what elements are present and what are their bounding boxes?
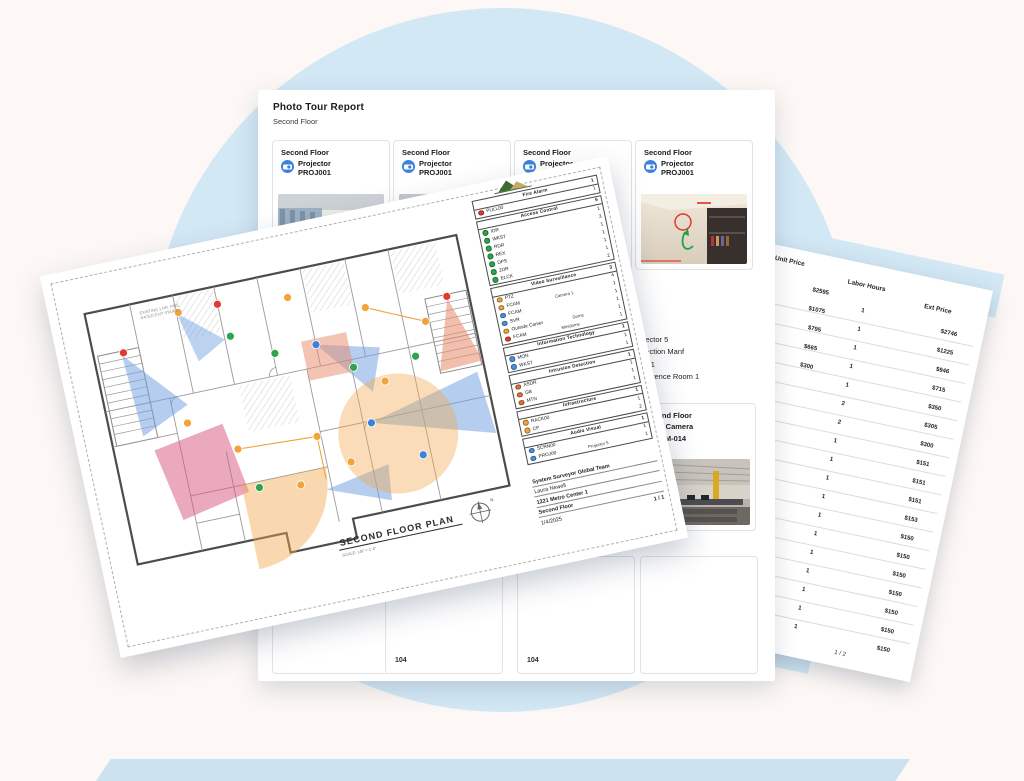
legend-item-label: WKST bbox=[519, 360, 534, 368]
device-symbol-icon bbox=[496, 297, 503, 304]
legend-item-label: GB bbox=[525, 390, 533, 396]
projector-icon bbox=[402, 160, 415, 173]
device-symbol-icon bbox=[489, 261, 496, 268]
labor-hours-value: 1 bbox=[820, 435, 851, 447]
legend-item-count: 1 bbox=[628, 376, 637, 383]
card-floor-label: Second Floor bbox=[281, 148, 381, 157]
legend-section-count: 3 bbox=[609, 265, 613, 270]
card-floor-label: Second Floor bbox=[402, 148, 502, 157]
site-photo-projector-mount bbox=[641, 194, 747, 264]
device-symbol-icon bbox=[482, 230, 489, 237]
pricing-header-unit-price: Unit Price bbox=[774, 255, 805, 268]
device-symbol-icon bbox=[492, 277, 499, 284]
labor-hours-value: 1 bbox=[796, 547, 827, 559]
labor-hours-value: 1 bbox=[844, 324, 875, 336]
bottom-blue-bar bbox=[96, 759, 910, 781]
labor-hours-value: 1 bbox=[804, 510, 835, 522]
card-device-id: PROJ001 bbox=[661, 168, 694, 177]
legend-section-count: 1 bbox=[628, 352, 632, 357]
device-symbol-icon bbox=[503, 328, 510, 335]
legend-item-label: FCAM bbox=[513, 333, 527, 341]
legend-item-count: 2 bbox=[602, 253, 611, 260]
legend-item-count: 1 bbox=[587, 186, 596, 193]
card-device-type: Projector bbox=[419, 159, 452, 168]
legend-section-count: 1 bbox=[641, 415, 645, 420]
legend-item-count: 1 bbox=[614, 312, 623, 319]
labor-hours-value: 1 bbox=[840, 342, 871, 354]
device-symbol-icon bbox=[516, 392, 523, 399]
labor-hours-value: 1 bbox=[784, 603, 815, 615]
card-device-type: Projector bbox=[298, 159, 331, 168]
device-symbol-icon bbox=[524, 427, 531, 434]
device-symbol-icon bbox=[530, 455, 537, 462]
legend-item-label: MTN bbox=[526, 397, 537, 404]
pricing-row-divider bbox=[748, 376, 958, 421]
labor-hours-value: 2 bbox=[828, 398, 859, 410]
device-symbol-icon bbox=[487, 253, 494, 260]
labor-hours-value: 1 bbox=[808, 491, 839, 503]
device-symbol-icon bbox=[509, 356, 516, 363]
device-symbol-icon bbox=[485, 245, 492, 252]
device-symbol-icon bbox=[518, 399, 525, 406]
card-floor-label: Second Floor bbox=[523, 148, 623, 157]
legend-item-label: ELCK bbox=[500, 274, 513, 281]
legend-item-label: CP bbox=[532, 426, 540, 432]
pricing-header-labor-hours: Labor Hours bbox=[847, 278, 886, 293]
legend-item-count: 1 bbox=[620, 340, 629, 347]
labor-hours-value: 1 bbox=[832, 380, 863, 392]
pricing-header-ext-price: Ext Price bbox=[924, 303, 953, 316]
footer-date: 1/4/2025 bbox=[540, 516, 562, 526]
svg-text:N: N bbox=[490, 497, 494, 503]
room-number-label: 104 bbox=[527, 657, 539, 664]
legend-section-count: 5 bbox=[595, 198, 599, 203]
device-symbol-icon bbox=[528, 447, 535, 454]
legend-item-count: 1 bbox=[639, 432, 648, 439]
room-card-104-b: 104 bbox=[517, 556, 635, 674]
device-symbol-icon bbox=[490, 269, 497, 276]
labor-hours-value: 1 bbox=[848, 305, 879, 317]
device-card-4: Second Floor Projector PROJ001 bbox=[635, 140, 753, 270]
card-device-type: Projector bbox=[661, 159, 694, 168]
device-symbol-icon bbox=[500, 312, 507, 319]
pricing-page-number: 1 / 2 bbox=[834, 650, 847, 658]
legend-section-count: 1 bbox=[635, 388, 639, 393]
report-title: Photo Tour Report bbox=[273, 102, 364, 113]
hero-graphic: Unit Price Labor Hours Ext Price $25951$… bbox=[0, 0, 1024, 781]
device-symbol-icon bbox=[484, 238, 491, 245]
room-number-label: 104 bbox=[395, 657, 407, 664]
device-symbol-icon bbox=[498, 305, 505, 312]
legend-section-count: 1 bbox=[622, 324, 626, 329]
device-symbol-icon bbox=[522, 419, 529, 426]
unit-price-value: $2595 bbox=[766, 278, 830, 297]
card-device-id: PROJ001 bbox=[298, 168, 331, 177]
device-symbol-icon bbox=[501, 320, 508, 327]
projector-icon bbox=[281, 160, 294, 173]
labor-hours-value: 1 bbox=[792, 565, 823, 577]
labor-hours-value: 1 bbox=[816, 454, 847, 466]
device-symbol-icon bbox=[510, 364, 517, 371]
room-card-empty bbox=[640, 556, 758, 674]
labor-hours-value: 1 bbox=[836, 361, 867, 373]
labor-hours-value: 1 bbox=[788, 584, 819, 596]
card-device-id: PROJ001 bbox=[419, 168, 452, 177]
report-subtitle: Second Floor bbox=[273, 117, 318, 126]
labor-hours-value: 2 bbox=[824, 417, 855, 429]
labor-hours-value: 1 bbox=[800, 528, 831, 540]
projector-icon bbox=[644, 160, 657, 173]
compass-icon: N bbox=[467, 497, 497, 525]
svg-text:SCALE: 1/8" = 1'-0": SCALE: 1/8" = 1'-0" bbox=[342, 545, 378, 557]
labor-hours-value: 1 bbox=[780, 621, 811, 633]
device-symbol-icon bbox=[515, 384, 522, 391]
labor-hours-value: 1 bbox=[812, 472, 843, 484]
card-floor-label: Second Floor bbox=[644, 148, 744, 157]
floor-plan-drawing: EXISTING 1 HR. FIRERATED EXIT STAIRS SEC… bbox=[47, 193, 540, 651]
plan-page-number: 1 / 1 bbox=[653, 494, 665, 502]
pricing-row-divider bbox=[744, 394, 954, 439]
legend-item-count: 2 bbox=[634, 404, 643, 411]
legend-section-count: 1 bbox=[591, 178, 595, 183]
device-symbol-icon bbox=[505, 336, 512, 343]
device-symbol-icon bbox=[478, 210, 485, 217]
legend-item-label: PROJ00 bbox=[538, 451, 557, 460]
